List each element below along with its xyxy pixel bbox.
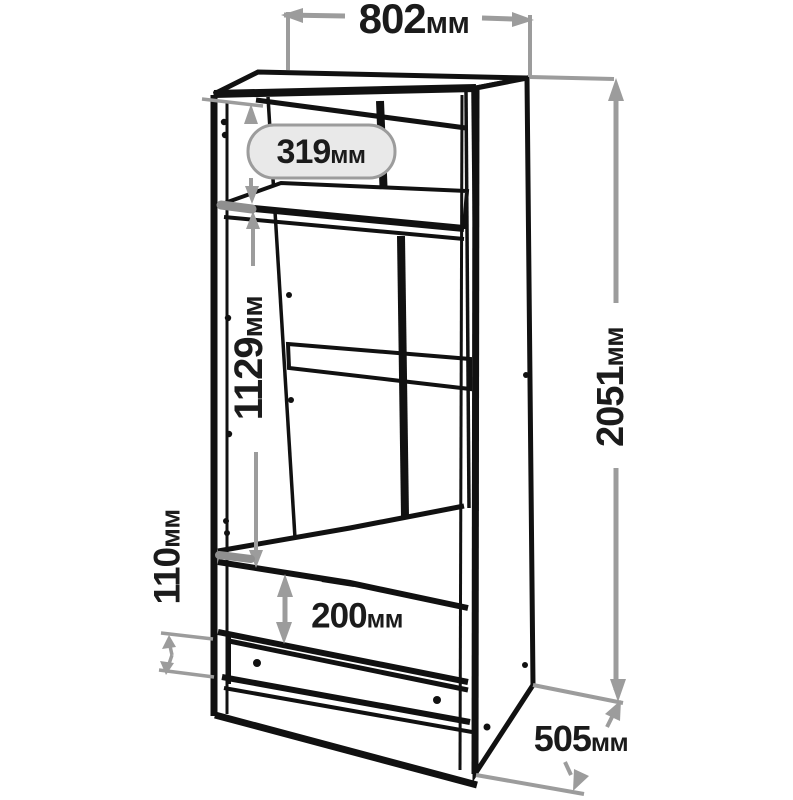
arrow-down-icon <box>610 679 626 702</box>
arrow-down-left-icon <box>573 769 589 791</box>
dimension-label-total-height: 2051мм <box>592 327 630 447</box>
dimension-label-upper-shelf: 319мм <box>277 135 366 169</box>
dimension-label-drawer: 200мм <box>311 599 403 634</box>
right-side-panel <box>475 78 533 774</box>
dimension-plinth <box>159 633 214 677</box>
wardrobe-line-drawing <box>0 0 793 800</box>
arrow-up-icon <box>608 78 624 101</box>
wardrobe-dimension-diagram: 802мм 319мм 1129мм 110мм 200мм 2051мм 50… <box>0 0 793 800</box>
dimension-drawer <box>276 574 293 644</box>
dimension-label-depth: 505мм <box>534 721 628 757</box>
dimension-label-plinth: 110мм <box>149 509 186 604</box>
arrow-up-icon <box>162 635 176 649</box>
dimension-label-hanging-area: 1129мм <box>229 296 269 420</box>
arrow-up-icon <box>277 574 293 597</box>
arrow-left-icon <box>281 8 303 23</box>
arrow-down-icon <box>276 622 292 644</box>
back-stiffener-rail <box>288 344 470 389</box>
upper-shelf <box>222 183 467 239</box>
dimension-label-width: 802мм <box>359 0 470 40</box>
arrow-up-icon <box>244 104 258 124</box>
right-stile <box>475 89 476 774</box>
center-partition <box>401 236 405 517</box>
